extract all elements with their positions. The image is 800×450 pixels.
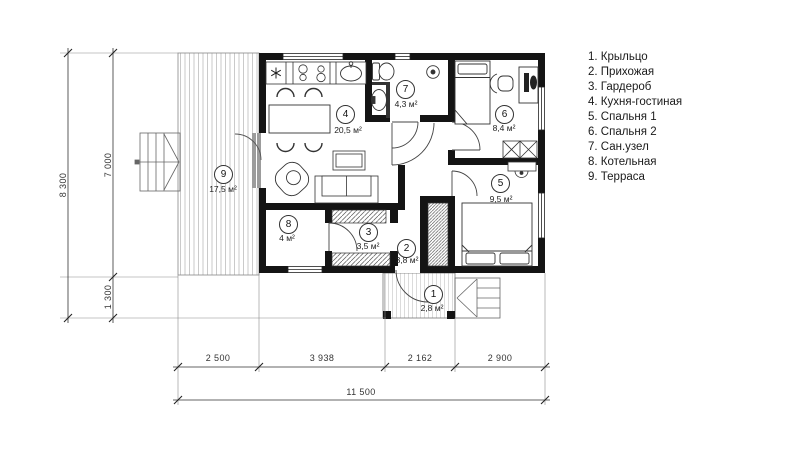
toilet	[373, 63, 395, 80]
legend-item: 8. Котельная	[588, 155, 682, 170]
room-area-label: 2,8 м²	[404, 303, 460, 313]
legend-item: 9. Терраса	[588, 170, 682, 185]
room-number-badge: 3	[359, 223, 378, 242]
room-area-label: 8,4 м²	[476, 123, 532, 133]
monitor	[524, 73, 529, 92]
dim-label: 1 300	[103, 285, 113, 310]
room-number-badge: 9	[214, 165, 233, 184]
room-number-badge: 5	[491, 174, 510, 193]
room-area-label: 4 м²	[259, 233, 315, 243]
bedroom2-window	[539, 87, 545, 130]
dim-total-label: 11 500	[346, 387, 375, 397]
dim-label: 2 900	[488, 353, 513, 363]
room-number-badge: 1	[424, 285, 443, 304]
bathroom-window	[395, 54, 410, 60]
wardrobe-shelf-top	[332, 210, 386, 223]
floor-plan-page: 1 2,8 м² 2 3,8 м² 3 3,5 м² 4 20,5 м² 5 9…	[0, 0, 800, 450]
porch-steps	[455, 278, 500, 318]
bedroom1-window	[539, 193, 545, 238]
legend-item: 5. Спальня 1	[588, 110, 682, 125]
legend: 1. Крыльцо 2. Прихожая 3. Гардероб 4. Ку…	[588, 50, 682, 185]
kitchen-window	[283, 54, 343, 60]
room-area-label: 9,5 м²	[473, 194, 529, 204]
room-area-label: 3,5 м²	[340, 241, 396, 251]
dim-label: 2 162	[408, 353, 433, 363]
bedroom1-bed	[462, 203, 532, 266]
terrace-entry-steps	[135, 133, 180, 191]
bedroom2-bed	[455, 61, 490, 124]
legend-item: 2. Прихожая	[588, 65, 682, 80]
sofa	[315, 176, 378, 203]
legend-item: 3. Гардероб	[588, 80, 682, 95]
bedroom2-wardrobe	[503, 141, 537, 158]
desk-speaker	[530, 76, 537, 90]
room-area-label: 4,3 м²	[378, 99, 434, 109]
dim-total-label: 8 300	[58, 173, 68, 198]
dim-label: 3 938	[310, 353, 335, 363]
boiler-window	[288, 267, 322, 273]
washing-machine	[427, 66, 440, 79]
terrace-area	[178, 53, 259, 275]
legend-item: 1. Крыльцо	[588, 50, 682, 65]
room-number-badge: 8	[279, 215, 298, 234]
legend-item: 7. Сан.узел	[588, 140, 682, 155]
room-area-label: 20,5 м²	[320, 125, 376, 135]
room-area-label: 3,8 м²	[379, 255, 435, 265]
room-number-badge: 4	[336, 105, 355, 124]
legend-item: 4. Кухня-гостиная	[588, 95, 682, 110]
coffee-table	[333, 151, 365, 170]
room-area-label: 17,5 м²	[195, 184, 251, 194]
dim-label: 7 000	[103, 153, 113, 178]
room-number-badge: 7	[396, 80, 415, 99]
dim-label: 2 500	[206, 353, 231, 363]
shelf	[508, 162, 536, 171]
legend-item: 6. Спальня 2	[588, 125, 682, 140]
room-number-badge: 6	[495, 105, 514, 124]
